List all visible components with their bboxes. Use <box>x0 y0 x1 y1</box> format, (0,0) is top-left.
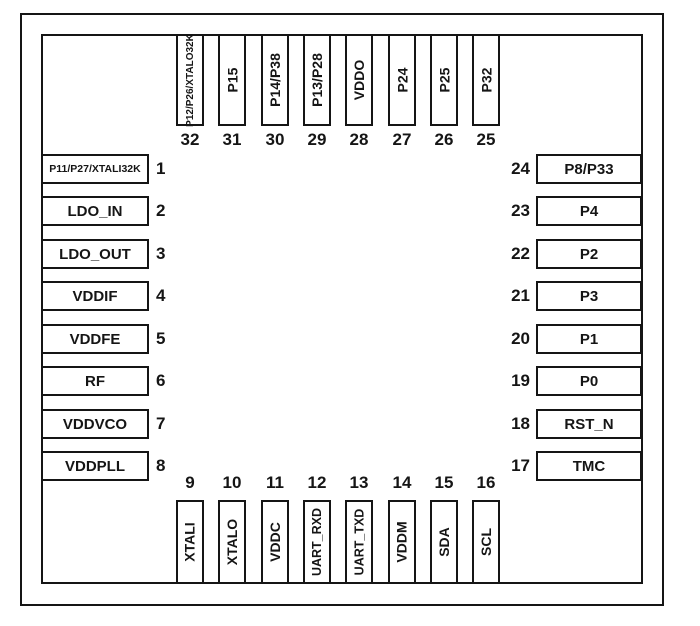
pin-31-label: P15 <box>224 68 240 93</box>
pin-14-label: VDDM <box>394 521 410 562</box>
pin-10-box: XTALO <box>218 500 246 584</box>
pin-22-label: P2 <box>580 246 598 263</box>
pin-29-number: 29 <box>297 130 337 150</box>
pin-11-box: VDDC <box>261 500 289 584</box>
pin-20-box: P1 <box>536 324 642 354</box>
pin-31-number: 31 <box>212 130 252 150</box>
pin-29-box: P13/P28 <box>303 34 331 126</box>
pin-28-box: VDDO <box>345 34 373 126</box>
pin-23-label: P4 <box>580 203 598 220</box>
pin-7-label: VDDVCO <box>63 416 127 433</box>
pin-2-label: LDO_IN <box>67 203 122 220</box>
pin-26-number: 26 <box>424 130 464 150</box>
pin-10-number: 10 <box>212 473 252 493</box>
pin-13-box: UART_TXD <box>345 500 373 584</box>
pin-27-box: P24 <box>388 34 416 126</box>
pin-15-box: SDA <box>430 500 458 584</box>
pin-3-number: 3 <box>156 239 186 269</box>
pin-26-box: P25 <box>430 34 458 126</box>
pin-20-label: P1 <box>580 331 598 348</box>
pin-29-label: P13/P28 <box>309 53 325 107</box>
pin-28-label: VDDO <box>351 60 367 100</box>
pin-5-box: VDDFE <box>41 324 149 354</box>
pin-30-label: P14/P38 <box>267 53 283 107</box>
pin-15-number: 15 <box>424 473 464 493</box>
pin-7-number: 7 <box>156 409 186 439</box>
pin-25-number: 25 <box>466 130 506 150</box>
pin-27-number: 27 <box>382 130 422 150</box>
pin-11-label: VDDC <box>267 522 283 562</box>
pin-28-number: 28 <box>339 130 379 150</box>
pin-3-box: LDO_OUT <box>41 239 149 269</box>
pin-17-box: TMC <box>536 451 642 481</box>
pin-8-label: VDDPLL <box>65 458 125 475</box>
pin-26-label: P25 <box>436 68 452 93</box>
pin-30-box: P14/P38 <box>261 34 289 126</box>
pin-27-label: P24 <box>394 68 410 93</box>
pin-5-number: 5 <box>156 324 186 354</box>
pin-32-box: P12/P26/XTALO32K <box>176 34 204 126</box>
pin-24-box: P8/P33 <box>536 154 642 184</box>
pin-25-label: P32 <box>478 68 494 93</box>
pin-21-number: 21 <box>496 281 530 311</box>
pin-11-number: 11 <box>255 473 295 493</box>
pin-13-label: UART_TXD <box>352 509 366 576</box>
pin-32-number: 32 <box>170 130 210 150</box>
pin-10-label: XTALO <box>224 519 240 565</box>
pin-2-box: LDO_IN <box>41 196 149 226</box>
pin-19-number: 19 <box>496 366 530 396</box>
pin-9-box: XTALI <box>176 500 204 584</box>
pin-4-number: 4 <box>156 281 186 311</box>
pin-6-label: RF <box>85 373 105 390</box>
pin-21-box: P3 <box>536 281 642 311</box>
pin-1-number: 1 <box>156 154 186 184</box>
pin-14-box: VDDM <box>388 500 416 584</box>
pin-31-box: P15 <box>218 34 246 126</box>
pin-32-label: P12/P26/XTALO32K <box>185 34 196 127</box>
pin-30-number: 30 <box>255 130 295 150</box>
pin-9-number: 9 <box>170 473 210 493</box>
pin-18-box: RST_N <box>536 409 642 439</box>
pin-20-number: 20 <box>496 324 530 354</box>
pin-15-label: SDA <box>436 527 452 557</box>
pin-24-number: 24 <box>496 154 530 184</box>
pin-16-number: 16 <box>466 473 506 493</box>
pin-4-box: VDDIF <box>41 281 149 311</box>
pin-7-box: VDDVCO <box>41 409 149 439</box>
pin-16-label: SCL <box>478 528 494 556</box>
pin-19-box: P0 <box>536 366 642 396</box>
pin-3-label: LDO_OUT <box>59 246 131 263</box>
pin-25-box: P32 <box>472 34 500 126</box>
pin-13-number: 13 <box>339 473 379 493</box>
pin-4-label: VDDIF <box>73 288 118 305</box>
pin-1-box: P11/P27/XTALI32K <box>41 154 149 184</box>
pin-1-label: P11/P27/XTALI32K <box>49 163 140 175</box>
pin-21-label: P3 <box>580 288 598 305</box>
pin-24-label: P8/P33 <box>564 161 613 178</box>
pin-22-box: P2 <box>536 239 642 269</box>
pin-22-number: 22 <box>496 239 530 269</box>
pin-16-box: SCL <box>472 500 500 584</box>
pin-9-label: XTALI <box>182 522 198 561</box>
pin-2-number: 2 <box>156 196 186 226</box>
pin-12-number: 12 <box>297 473 337 493</box>
pin-5-label: VDDFE <box>70 331 121 348</box>
pin-23-number: 23 <box>496 196 530 226</box>
pin-6-number: 6 <box>156 366 186 396</box>
pin-12-box: UART_RXD <box>303 500 331 584</box>
pin-23-box: P4 <box>536 196 642 226</box>
pin-19-label: P0 <box>580 373 598 390</box>
pin-18-number: 18 <box>496 409 530 439</box>
pin-14-number: 14 <box>382 473 422 493</box>
pin-17-label: TMC <box>573 458 606 475</box>
pin-18-label: RST_N <box>564 416 613 433</box>
pin-12-label: UART_RXD <box>310 508 324 576</box>
pinout-figure: P11/P27/XTALI32K 1 LDO_IN 2 LDO_OUT 3 VD… <box>0 0 700 626</box>
pin-6-box: RF <box>41 366 149 396</box>
pin-8-box: VDDPLL <box>41 451 149 481</box>
